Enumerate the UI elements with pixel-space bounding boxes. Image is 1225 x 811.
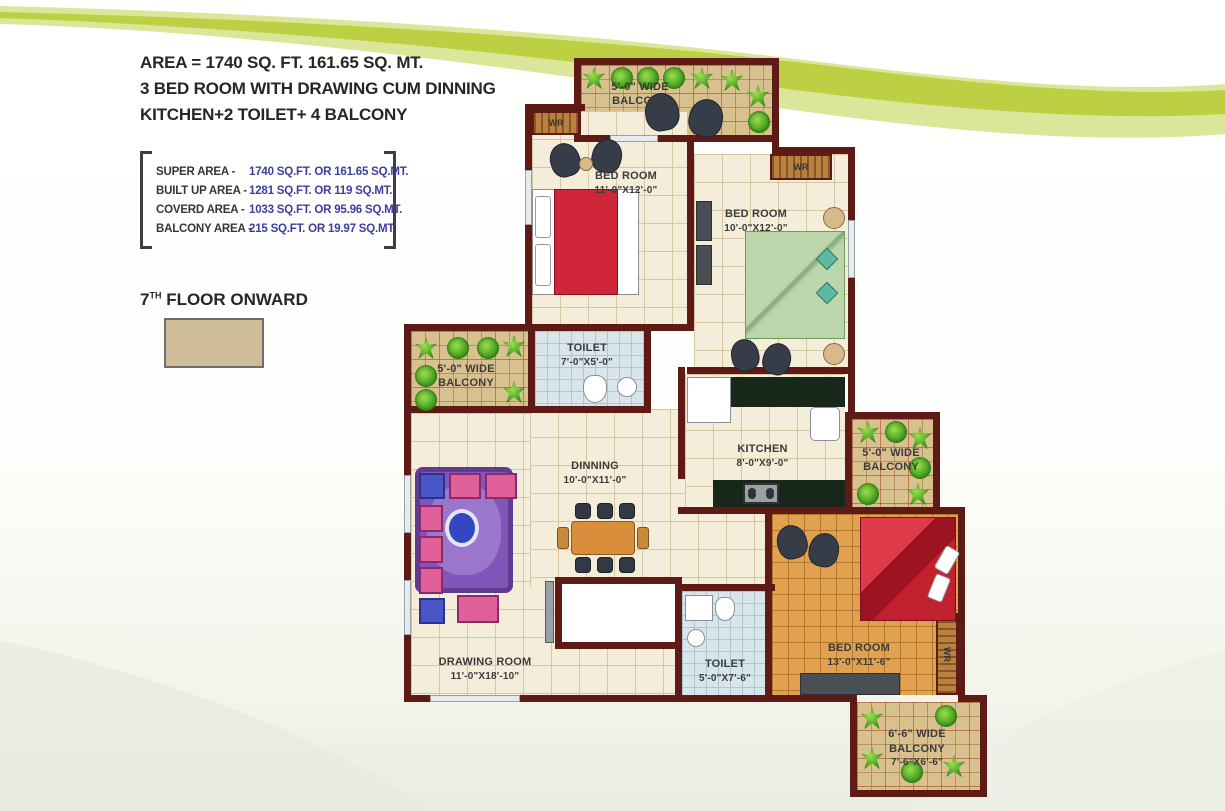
chair-icon (619, 503, 635, 519)
plant-icon (477, 337, 499, 359)
room-name: TOILET (567, 341, 607, 355)
room-name: BALCONY (863, 460, 919, 474)
window (525, 170, 532, 225)
room-name: DINNING (571, 459, 619, 473)
area-row-value: 1281 SQ.FT. OR 119 SQ.MT. (249, 182, 392, 201)
window (430, 695, 520, 702)
sofa-seat-icon (419, 536, 443, 563)
room-name: BALCONY (438, 376, 494, 390)
floor-color-swatch (164, 318, 264, 368)
balcony-right-label: 5'-0" WIDE BALCONY (850, 443, 932, 477)
balcony-top-label: 5'-0" WIDE BALCONY (580, 77, 700, 111)
room-name: TOILET (705, 657, 745, 671)
chair-icon (575, 503, 591, 519)
room-name: 5'-0" WIDE (862, 446, 920, 460)
toilet-wc-icon (583, 375, 607, 403)
room-dims: 11'-0"X12'-0" (595, 184, 658, 197)
sink-icon (687, 629, 705, 647)
chair-icon (637, 527, 649, 549)
wr-label: WR (770, 156, 832, 178)
toilet-wc-icon (715, 597, 735, 621)
floor-label: FLOOR ONWARD (161, 290, 307, 309)
shower-tray-icon (685, 595, 713, 621)
wall-segment (980, 695, 987, 797)
balcony-left-label: 5'-0" WIDE BALCONY (407, 359, 525, 393)
drawing-room-label: DRAWING ROOM 11'-0"X18'-10" (420, 653, 550, 685)
area-row-super: SUPER AREA - 1740 SQ.FT. OR 161.65 SQ.MT… (156, 163, 380, 182)
bracket-left (140, 151, 152, 249)
room-dims: 10'-0"X11'-0" (564, 474, 627, 487)
bedroom3-label: BED ROOM 13'-0"X11'-6" (795, 639, 923, 671)
sink-icon (617, 377, 637, 397)
room-name: 5'-0" WIDE (437, 362, 495, 376)
wall-segment (850, 695, 857, 797)
room-dims: 10'-0"X12'-0" (724, 222, 788, 235)
entrance-door-icon (545, 581, 554, 643)
room-dims: 8'-0"X9'-0" (736, 457, 788, 470)
wardrobe-icon (696, 245, 712, 285)
wr-label: WR (938, 625, 956, 683)
dinning-label: DINNING 10'-0"X11'-0" (530, 457, 660, 489)
chair-icon (597, 557, 613, 573)
kitchen-counter (731, 377, 845, 407)
side-table-icon (823, 343, 845, 365)
sofa-seat-icon (457, 595, 499, 623)
wall-segment (678, 367, 685, 479)
window (610, 135, 658, 142)
room-name: 5'-0" WIDE (611, 80, 669, 94)
sofa-corner-icon (419, 473, 445, 499)
wr-label: WR (532, 113, 580, 133)
chair-icon (597, 503, 613, 519)
bed-blanket (554, 189, 618, 295)
plant-icon (748, 111, 770, 133)
fridge-icon (687, 377, 731, 423)
plant-icon (885, 421, 907, 443)
room-name: BED ROOM (828, 641, 890, 655)
pillow-icon (535, 244, 551, 286)
window (404, 580, 411, 635)
wall-segment (562, 577, 682, 584)
sofa-seat-icon (419, 567, 443, 594)
wardrobe-icon (800, 673, 900, 695)
room-dims: 13'-0"X11'-6" (828, 656, 891, 669)
floor-note: 7TH FLOOR ONWARD (140, 290, 308, 310)
area-row-label: BUILT UP AREA - (156, 182, 249, 201)
bedroom1-label: BED ROOM 11'-0"X12'-0" (561, 167, 691, 199)
bedroom2-label: BED ROOM 10'-0"X12'-0" (691, 205, 821, 237)
wall-segment (678, 507, 965, 514)
room-dims: 7'-6"X6'-6" (891, 756, 943, 769)
plant-icon (857, 483, 879, 505)
area-row-balcony: BALCONY AREA - 215 SQ.FT. OR 19.97 SQ.MT… (156, 220, 380, 239)
toilet2-label: TOILET 5'-0"X7'-6" (681, 655, 769, 687)
room-name: BED ROOM (725, 207, 787, 221)
chair-icon (575, 557, 591, 573)
side-table-icon (823, 207, 845, 229)
kitchen-sink-icon (810, 407, 840, 441)
area-row-label: BALCONY AREA - (156, 220, 249, 239)
plant-icon (447, 337, 469, 359)
area-row-covered: COVERD AREA - 1033 SQ.FT. OR 95.96 SQ.MT… (156, 201, 380, 220)
stove-icon (743, 483, 779, 504)
kitchen-label: KITCHEN 8'-0"X9'-0" (700, 440, 825, 472)
room-name: BALCONY (612, 94, 668, 108)
room-name: DRAWING ROOM (439, 655, 532, 669)
window (848, 220, 855, 278)
sofa-seat-icon (419, 505, 443, 532)
chair-icon (557, 527, 569, 549)
room-name: BED ROOM (595, 169, 657, 183)
floor-plan: 5'-0" WIDE BALCONY BED ROOM 11'-0"X12'-0… (395, 55, 995, 803)
entrance-landing (562, 584, 675, 642)
area-row-value: 215 SQ.FT. OR 19.97 SQ.MT. (249, 220, 396, 239)
wall-segment (933, 412, 940, 514)
room-dims: 11'-0"X18'-10" (451, 670, 520, 683)
rug-medallion (445, 509, 479, 547)
room-name: KITCHEN (737, 442, 787, 456)
wall-segment (958, 507, 965, 702)
pillow-icon (535, 196, 551, 238)
room-name: 6'-6" WIDE (888, 727, 946, 741)
chair-icon (619, 557, 635, 573)
toilet1-label: TOILET 7'-0"X5'-0" (527, 339, 647, 371)
balcony-bottom-label: 6'-6" WIDE BALCONY 7'-6"X6'-6" (857, 723, 977, 773)
sofa-seat-icon (485, 473, 517, 499)
area-details-box: SUPER AREA - 1740 SQ.FT. OR 161.65 SQ.MT… (140, 151, 396, 249)
area-row-label: COVERD AREA - (156, 201, 249, 220)
wall-segment (850, 790, 987, 797)
sofa-seat-icon (449, 473, 481, 499)
floorplan-brochure: AREA = 1740 SQ. FT. 161.65 SQ. MT. 3 BED… (0, 0, 1225, 811)
wall-segment (848, 147, 855, 419)
wall-segment (675, 584, 775, 591)
sofa-corner-icon (419, 598, 445, 624)
floor-suffix: TH (149, 290, 161, 300)
wall-segment (555, 642, 682, 649)
room-dims: 5'-0"X7'-6" (699, 672, 751, 685)
window (404, 475, 411, 533)
wall-segment (772, 147, 855, 154)
wall-segment (848, 412, 940, 419)
area-row-value: 1033 SQ.FT. OR 95.96 SQ.MT. (249, 201, 402, 220)
room-dims: 7'-0"X5'-0" (561, 356, 613, 369)
area-row-builtup: BUILT UP AREA - 1281 SQ.FT. OR 119 SQ.MT… (156, 182, 380, 201)
dining-table-icon (571, 521, 635, 555)
kitchen-counter (713, 480, 845, 507)
wall-segment (574, 58, 779, 65)
wall-segment (555, 577, 562, 649)
area-row-label: SUPER AREA - (156, 163, 249, 182)
room-name: BALCONY (889, 742, 945, 756)
wall-segment (525, 104, 585, 111)
